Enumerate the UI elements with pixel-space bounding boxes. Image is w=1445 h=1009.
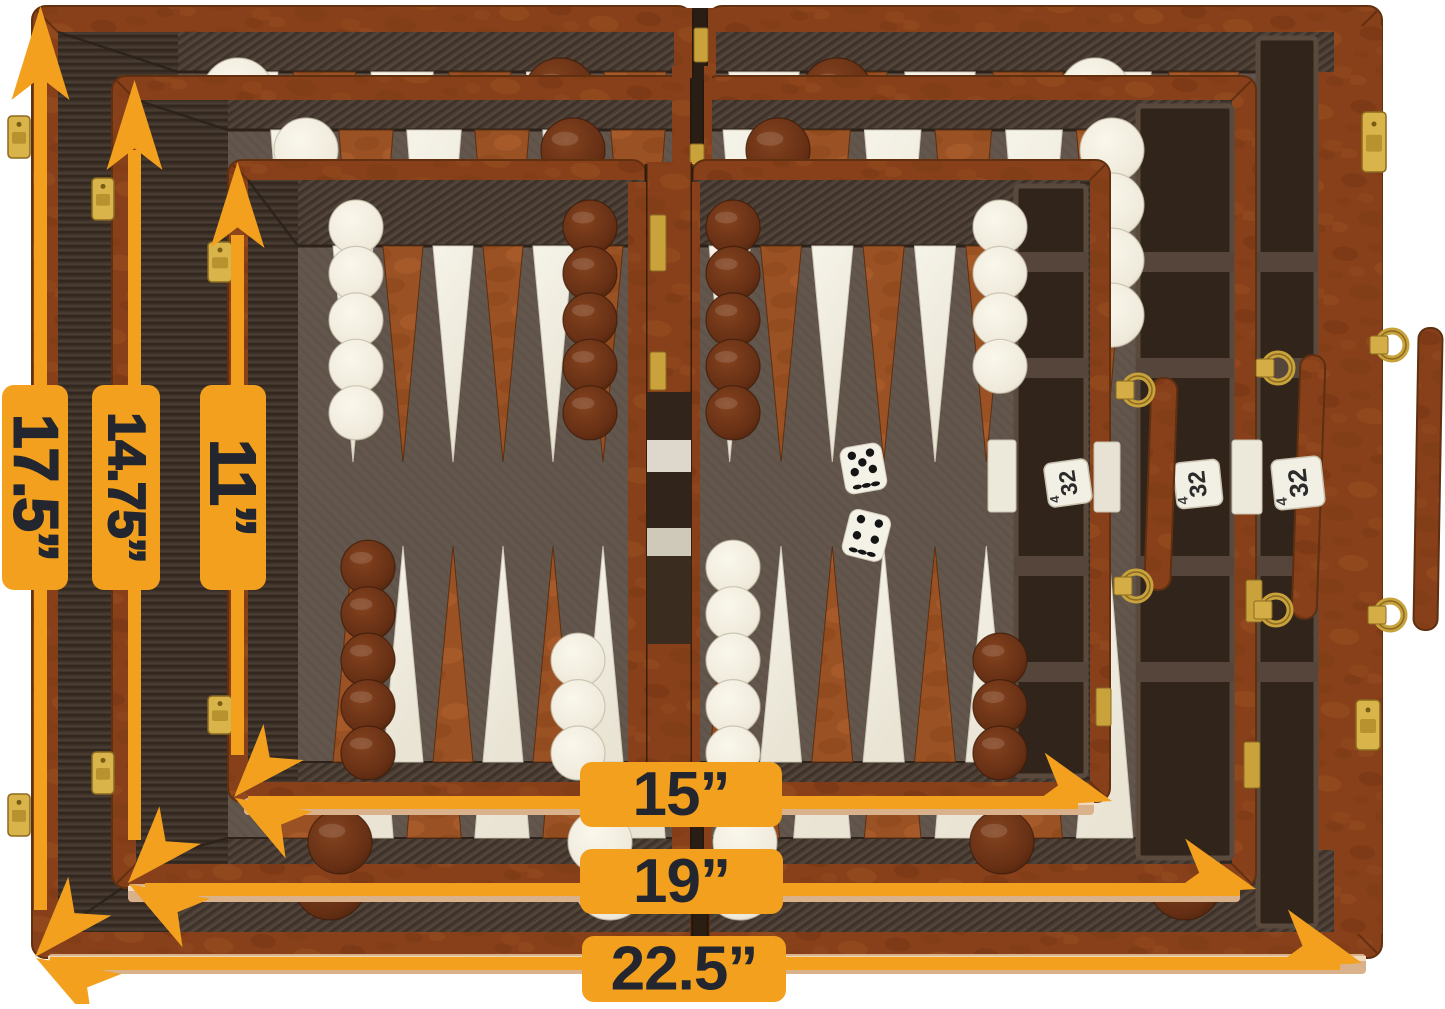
svg-text:32: 32 — [1053, 469, 1082, 498]
svg-text:32: 32 — [1183, 469, 1213, 498]
svg-text:19”: 19” — [633, 847, 730, 916]
svg-text:32: 32 — [1282, 467, 1315, 499]
svg-text:14.75”: 14.75” — [97, 412, 155, 562]
svg-text:22.5”: 22.5” — [611, 935, 758, 1004]
svg-text:17.5”: 17.5” — [1, 414, 70, 561]
svg-text:11”: 11” — [197, 439, 269, 536]
svg-text:15”: 15” — [633, 760, 730, 829]
